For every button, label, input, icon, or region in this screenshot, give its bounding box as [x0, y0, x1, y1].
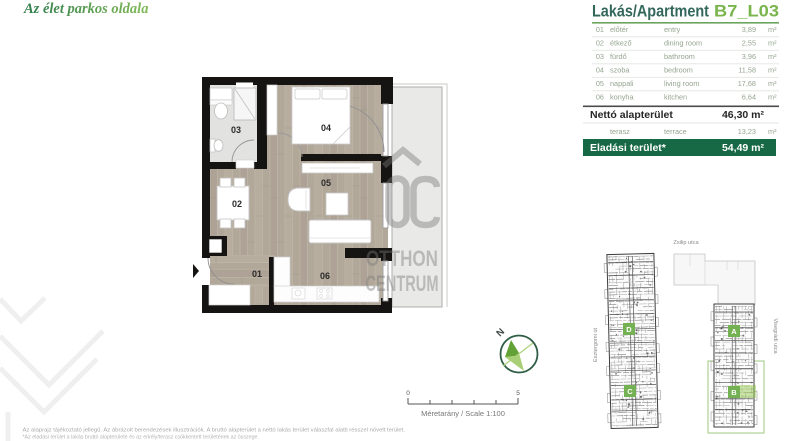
- svg-text:Nettó alapterület: Nettó alapterület: [590, 109, 673, 121]
- svg-text:konyha: konyha: [610, 93, 634, 102]
- svg-text:46,30 m²: 46,30 m²: [722, 109, 765, 121]
- svg-text:3,96: 3,96: [742, 52, 756, 61]
- svg-text:D: D: [626, 325, 632, 334]
- svg-text:06: 06: [596, 93, 604, 102]
- svg-text:01: 01: [596, 25, 604, 34]
- svg-text:Lakás/Apartment: Lakás/Apartment: [592, 3, 709, 21]
- svg-text:02: 02: [596, 39, 604, 48]
- svg-text:bedroom: bedroom: [664, 66, 693, 75]
- svg-text:Visegrádi utca: Visegrádi utca: [772, 318, 778, 354]
- svg-text:Esztergomi út: Esztergomi út: [593, 327, 599, 362]
- svg-text:06: 06: [320, 271, 330, 281]
- svg-text:m²: m²: [768, 127, 777, 136]
- svg-text:17,68: 17,68: [738, 79, 756, 88]
- svg-text:C: C: [627, 387, 633, 396]
- svg-text:nappali: nappali: [610, 79, 634, 88]
- svg-text:Az élet parkos oldala: Az élet parkos oldala: [23, 1, 148, 17]
- svg-text:04: 04: [321, 123, 331, 133]
- svg-text:04: 04: [596, 66, 604, 75]
- svg-text:kitchen: kitchen: [664, 93, 687, 102]
- svg-text:Méretarány / Scale 1:100: Méretarány / Scale 1:100: [421, 409, 505, 418]
- svg-text:2,55: 2,55: [742, 39, 756, 48]
- svg-text:03: 03: [231, 125, 241, 135]
- svg-text:5: 5: [516, 390, 520, 397]
- svg-text:Az alaprajz tájékoztató jelleg: Az alaprajz tájékoztató jellegű. Az ábrá…: [23, 428, 406, 434]
- svg-text:01: 01: [252, 269, 262, 279]
- svg-text:m²: m²: [768, 93, 777, 102]
- svg-text:Zsilip utca: Zsilip utca: [673, 240, 699, 246]
- svg-text:m²: m²: [768, 79, 777, 88]
- svg-text:B7_L03: B7_L03: [714, 3, 779, 21]
- svg-text:étkező: étkező: [610, 39, 632, 48]
- svg-text:m²: m²: [768, 25, 777, 34]
- svg-text:m²: m²: [768, 52, 777, 61]
- svg-text:0: 0: [406, 390, 410, 397]
- svg-text:OTTHON: OTTHON: [366, 246, 438, 271]
- svg-text:szoba: szoba: [610, 66, 630, 75]
- svg-text:6,64: 6,64: [742, 93, 756, 102]
- svg-text:A: A: [731, 327, 737, 336]
- svg-text:dining room: dining room: [664, 39, 702, 48]
- svg-text:fürdő: fürdő: [610, 52, 627, 61]
- svg-text:terrace: terrace: [664, 127, 687, 136]
- svg-text:terasz: terasz: [610, 127, 630, 136]
- svg-text:11,58: 11,58: [738, 66, 756, 75]
- svg-text:előtér: előtér: [610, 25, 629, 34]
- svg-text:02: 02: [232, 199, 242, 209]
- svg-text:3,89: 3,89: [742, 25, 756, 34]
- svg-text:bathroom: bathroom: [664, 52, 695, 61]
- svg-text:m²: m²: [768, 66, 777, 75]
- svg-text:*Az eladási terület a lakás br: *Az eladási terület a lakás bruttó alapt…: [23, 435, 259, 441]
- svg-text:B: B: [731, 388, 737, 397]
- svg-text:03: 03: [596, 52, 604, 61]
- svg-text:m²: m²: [768, 39, 777, 48]
- svg-text:entry: entry: [664, 25, 681, 34]
- svg-text:living room: living room: [664, 79, 699, 88]
- svg-text:13,23: 13,23: [738, 127, 756, 136]
- svg-text:Eladási terület*: Eladási terület*: [590, 142, 667, 154]
- svg-text:54,49 m²: 54,49 m²: [722, 142, 765, 154]
- svg-text:CENTRUM: CENTRUM: [366, 271, 439, 296]
- svg-text:05: 05: [596, 79, 604, 88]
- svg-text:05: 05: [321, 178, 331, 188]
